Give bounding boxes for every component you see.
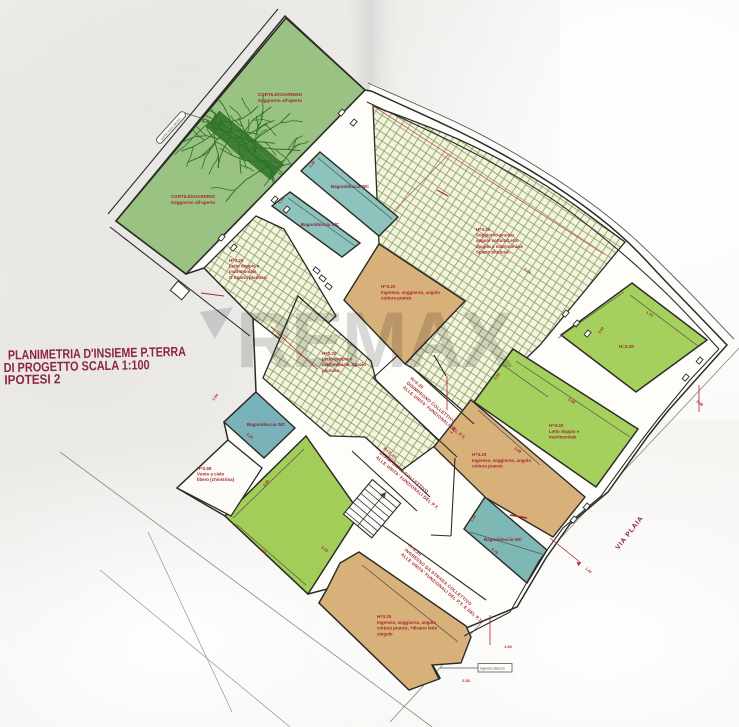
svg-text:Ingresso, soggiorno, angolo: Ingresso, soggiorno, angolo [377, 620, 436, 625]
svg-text:2.53: 2.53 [462, 679, 469, 683]
svg-text:Bagno/doccia WC: Bagno/doccia WC [331, 184, 370, 189]
svg-text:CORTILE/GIARDINO: CORTILE/GIARDINO [171, 194, 216, 199]
svg-text:cottura pranzo.: cottura pranzo. [472, 464, 504, 469]
svg-text:Soggiorno-pranzo: Soggiorno-pranzo [476, 233, 514, 238]
svg-text:1.60: 1.60 [504, 645, 511, 649]
svg-text:H=3.25: H=3.25 [229, 258, 244, 263]
svg-text:Letto doppio e: Letto doppio e [549, 429, 580, 434]
svg-text:REMAX: REMAX [236, 295, 513, 384]
svg-text:IPOTESI 2: IPOTESI 2 [4, 371, 60, 387]
svg-text:angolo cottura/Letto: angolo cottura/Letto [476, 238, 519, 243]
svg-text:H=3.20: H=3.20 [381, 284, 396, 289]
svg-text:H=3.20: H=3.20 [472, 452, 487, 457]
svg-text:Bagno/doccia WC: Bagno/doccia WC [301, 222, 340, 227]
svg-text:Vuoto a cielo: Vuoto a cielo [197, 472, 224, 477]
svg-text:Ingresso /descr.le: Ingresso /descr.le [480, 667, 505, 671]
svg-text:Letto doppio o: Letto doppio o [229, 264, 260, 269]
svg-text:matrimoniale: matrimoniale [549, 435, 577, 440]
svg-text:libero (chiostrina): libero (chiostrina) [197, 477, 235, 482]
svg-text:Bagno/doccia WC: Bagno/doccia WC [247, 422, 286, 427]
svg-text:H=2.58: H=2.58 [197, 466, 212, 471]
svg-text:Soggiorno all'aperto: Soggiorno all'aperto [171, 200, 216, 205]
svg-text:Ingresso, soggiorno, angolo: Ingresso, soggiorno, angolo [472, 458, 531, 463]
svg-text:singolo: singolo [377, 631, 393, 636]
svg-text:cottura pranzo, +divano letto: cottura pranzo, +divano letto [377, 626, 437, 631]
svg-text:H=3.20: H=3.20 [476, 227, 491, 232]
svg-text:O Spazio plurluso.: O Spazio plurluso. [229, 275, 268, 280]
svg-text:H=3.20: H=3.20 [549, 423, 564, 428]
svg-text:H=3.25: H=3.25 [377, 614, 392, 619]
svg-text:CORTILE/GIARDINO: CORTILE/GIARDINO [258, 92, 303, 97]
svg-text:Soggiorno all'aperto: Soggiorno all'aperto [258, 98, 303, 103]
svg-text:Bagno/doccia WC: Bagno/doccia WC [484, 537, 523, 542]
svg-text:Spazio plurluso.: Spazio plurluso. [476, 249, 510, 254]
svg-text:H=3.20: H=3.20 [619, 344, 634, 349]
svg-text:doppio o matrimoniale: doppio o matrimoniale [476, 244, 524, 249]
svg-text:matrimoniale.: matrimoniale. [229, 269, 258, 274]
